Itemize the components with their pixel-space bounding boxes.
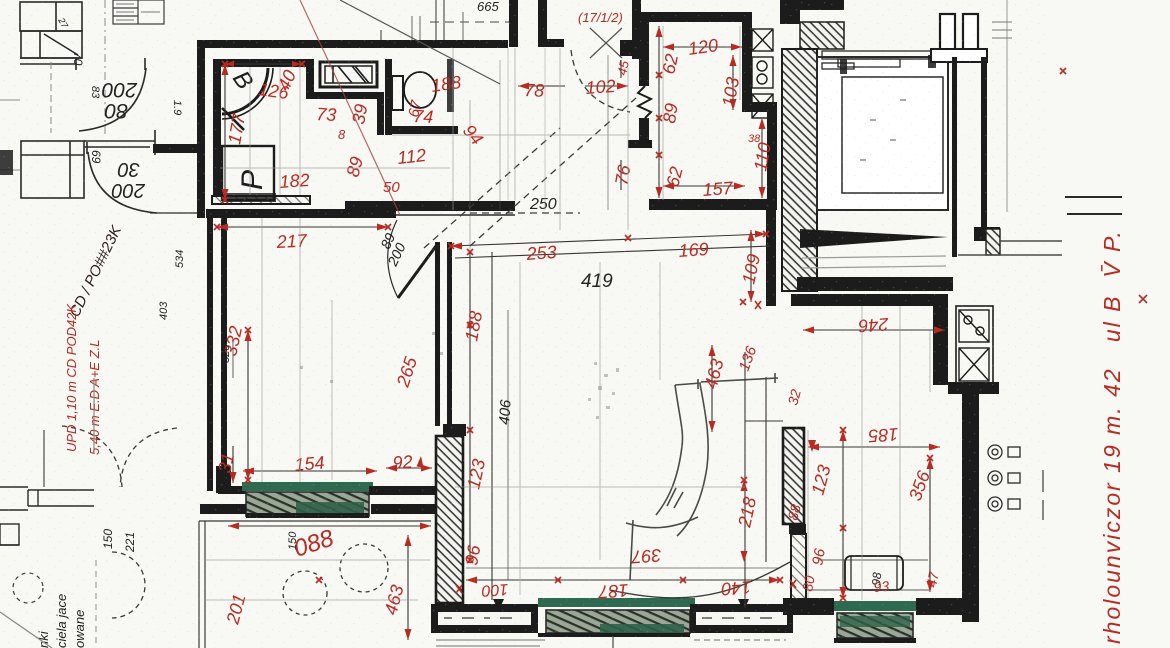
svg-text:rholounviczor 19 m. 42 ul B: rholounviczor 19 m. 42 ul B V̄ P.: [1099, 229, 1125, 644]
